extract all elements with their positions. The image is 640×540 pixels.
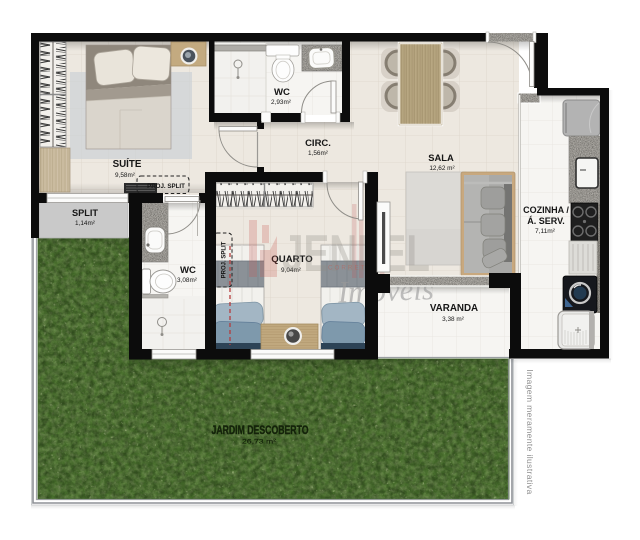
svg-text:Imagem meramente ilustrativa: Imagem meramente ilustrativa — [525, 369, 535, 494]
svg-text:WC: WC — [274, 87, 290, 98]
svg-text:PROJ. SPLIT: PROJ. SPLIT — [222, 241, 228, 278]
svg-text:26,73 m²: 26,73 m² — [242, 439, 277, 446]
svg-text:9,58m²: 9,58m² — [115, 172, 135, 179]
svg-text:3,08m²: 3,08m² — [177, 277, 197, 284]
svg-text:3,38 m²: 3,38 m² — [442, 316, 464, 323]
svg-text:COZINHA /: COZINHA / — [523, 205, 569, 215]
svg-text:7,11m²: 7,11m² — [535, 228, 556, 235]
svg-text:SPLIT: SPLIT — [72, 208, 98, 218]
svg-text:PROJ. SPLIT: PROJ. SPLIT — [147, 183, 185, 190]
svg-text:WC: WC — [180, 265, 196, 276]
svg-text:CIRC.: CIRC. — [305, 138, 331, 149]
svg-text:1,14m²: 1,14m² — [75, 220, 95, 227]
svg-text:1,56m²: 1,56m² — [308, 150, 328, 157]
svg-text:SUÍTE: SUÍTE — [113, 158, 142, 170]
svg-text:JARDIM DESCOBERTO: JARDIM DESCOBERTO — [212, 425, 309, 437]
svg-text:2,93m²: 2,93m² — [271, 99, 291, 106]
svg-text:12,62 m²: 12,62 m² — [429, 165, 454, 172]
svg-text:Á. SERV.: Á. SERV. — [527, 216, 565, 226]
svg-text:SALA: SALA — [428, 152, 454, 163]
svg-text:VARANDA: VARANDA — [430, 303, 478, 314]
